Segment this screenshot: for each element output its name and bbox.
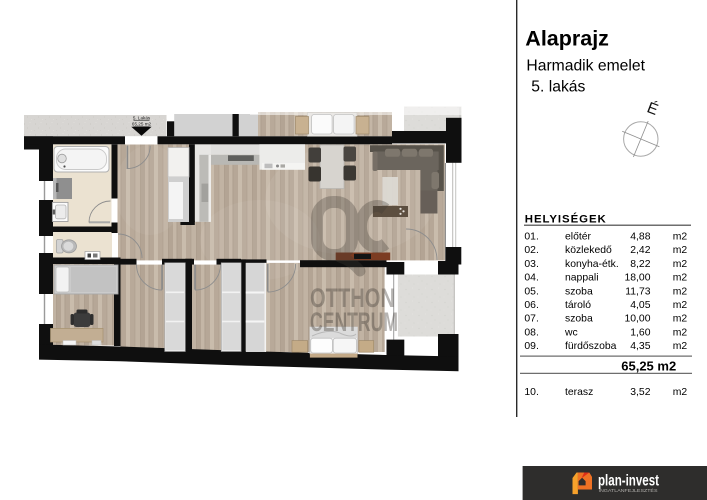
svg-text:18,00: 18,00 <box>624 273 650 284</box>
svg-text:3,52: 3,52 <box>630 387 650 398</box>
svg-text:É: É <box>645 99 661 119</box>
svg-text:nappali: nappali <box>565 273 599 284</box>
svg-text:m2: m2 <box>673 245 688 256</box>
svg-text:tároló: tároló <box>565 300 591 311</box>
svg-text:m2: m2 <box>673 314 688 325</box>
svg-text:m2: m2 <box>673 232 688 243</box>
svg-text:m2: m2 <box>673 300 688 311</box>
svg-text:5. Lakás: 5. Lakás <box>133 116 151 121</box>
svg-text:5. lakás: 5. lakás <box>531 79 585 96</box>
svg-text:m2: m2 <box>673 341 688 352</box>
svg-text:m2: m2 <box>673 327 688 338</box>
svg-text:65,25 m2: 65,25 m2 <box>621 359 676 374</box>
svg-text:HELYISÉGEK: HELYISÉGEK <box>525 212 607 225</box>
svg-text:fürdőszoba: fürdőszoba <box>565 341 617 352</box>
svg-text:wc: wc <box>564 327 578 338</box>
svg-text:03.: 03. <box>524 259 538 270</box>
svg-text:terasz: terasz <box>565 387 593 398</box>
svg-text:08.: 08. <box>524 327 538 338</box>
svg-text:65,25 m2: 65,25 m2 <box>132 122 152 127</box>
svg-text:szoba: szoba <box>565 314 593 325</box>
svg-text:szoba: szoba <box>565 286 593 297</box>
svg-text:Harmadik emelet: Harmadik emelet <box>526 58 645 75</box>
svg-text:2,42: 2,42 <box>630 245 650 256</box>
svg-text:Alaprajz: Alaprajz <box>525 27 609 51</box>
svg-text:09.: 09. <box>524 341 538 352</box>
svg-text:07.: 07. <box>524 314 538 325</box>
svg-text:01.: 01. <box>524 232 538 243</box>
svg-text:4,05: 4,05 <box>630 300 650 311</box>
svg-text:m2: m2 <box>673 286 688 297</box>
svg-text:4,35: 4,35 <box>630 341 650 352</box>
svg-text:INGATLANFEJLESZTÉS: INGATLANFEJLESZTÉS <box>599 487 658 494</box>
svg-text:plan-invest: plan-invest <box>598 473 659 490</box>
svg-text:előtér: előtér <box>565 232 592 243</box>
svg-text:CENTRUM: CENTRUM <box>310 307 398 337</box>
svg-text:10.: 10. <box>524 387 538 398</box>
svg-text:1,60: 1,60 <box>630 327 650 338</box>
svg-text:10,00: 10,00 <box>624 314 650 325</box>
svg-text:11,73: 11,73 <box>625 286 650 297</box>
svg-text:m2: m2 <box>673 273 688 284</box>
svg-text:05.: 05. <box>524 286 538 297</box>
svg-text:06.: 06. <box>524 300 538 311</box>
svg-text:közlekedő: közlekedő <box>565 245 612 256</box>
svg-text:8,22: 8,22 <box>630 259 650 270</box>
svg-text:konyha-étk.: konyha-étk. <box>565 259 619 270</box>
svg-text:4,88: 4,88 <box>630 232 650 243</box>
svg-text:m2: m2 <box>673 387 688 398</box>
svg-text:02.: 02. <box>524 245 538 256</box>
svg-text:m2: m2 <box>673 259 688 270</box>
svg-text:04.: 04. <box>524 273 538 284</box>
